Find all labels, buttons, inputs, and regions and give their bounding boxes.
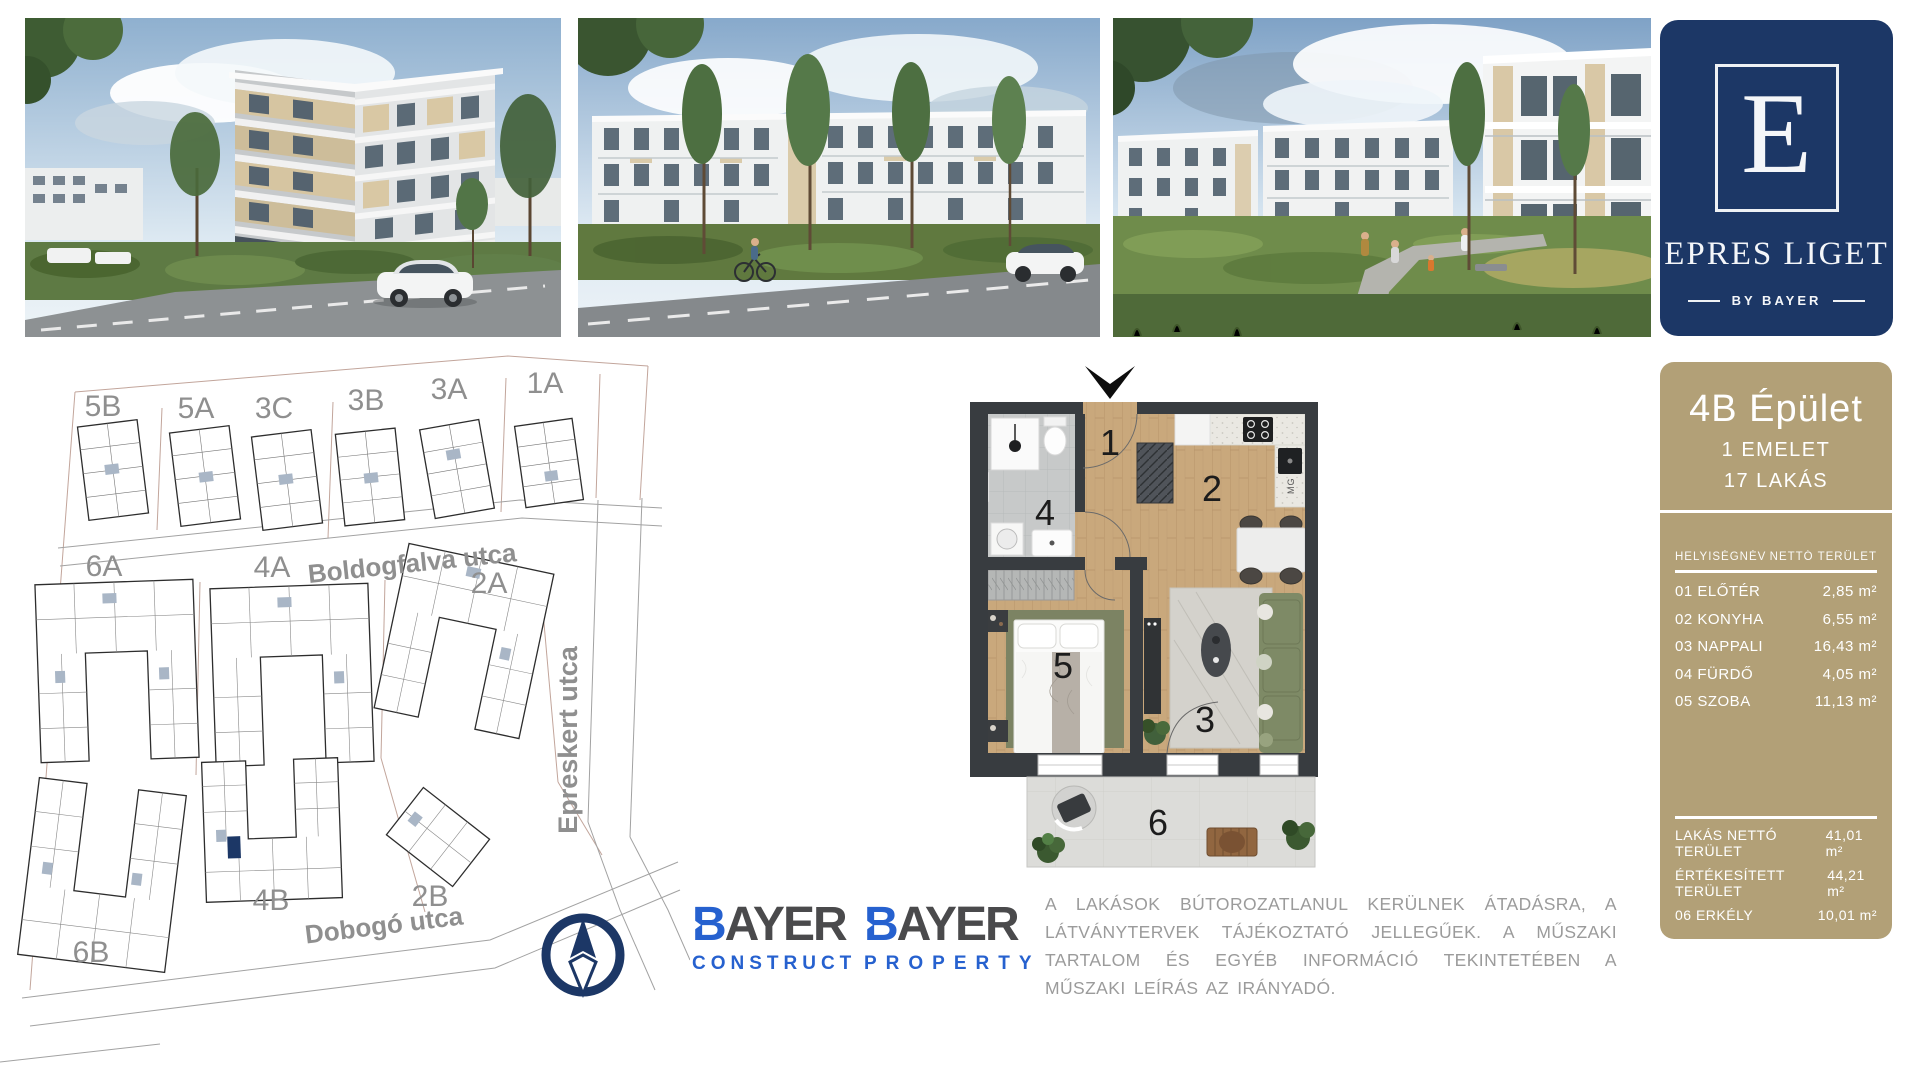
bayer-construct-wordmark: BAYER (692, 901, 856, 949)
map-label-6b: 6B (73, 936, 110, 969)
unit-info-panel: 4B Épület 1 EMELET 17 LAKÁS HELYISÉGNÉV … (1660, 362, 1892, 939)
room-number-5: 5 (1053, 645, 1073, 686)
bayer-construct-logo: BAYER CONSTRUCT (692, 901, 856, 973)
room-name: 03 NAPPALI (1675, 638, 1763, 655)
table-row-total: 06 ERKÉLY10,01 m² (1675, 907, 1877, 923)
total-area: 41,01 m² (1826, 827, 1877, 859)
room-table-header-rule (1675, 570, 1877, 573)
selected-unit-marker (227, 836, 241, 858)
table-row: 02 KONYHA6,55 m² (1675, 611, 1877, 628)
total-name: ÉRTÉKESÍTETT TERÜLET (1675, 867, 1827, 899)
room-table-header-name: HELYISÉGNÉV (1675, 551, 1766, 563)
coffee-table (1201, 623, 1231, 677)
bayer-b-initial: B (692, 901, 725, 949)
toilet-tank (1044, 417, 1066, 426)
unit-count: 17 LAKÁS (1660, 470, 1892, 493)
map-label-4b: 4B (253, 884, 290, 917)
appliance-label: MG (1286, 478, 1296, 495)
map-label-3a: 3A (431, 373, 468, 406)
map-label-3b: 3B (348, 384, 385, 417)
map-building-4b (202, 758, 343, 903)
total-area: 10,01 m² (1818, 907, 1877, 923)
room-name: 01 ELŐTÉR (1675, 583, 1760, 600)
bayer-rest: AYER (725, 898, 846, 951)
shaft-block (1137, 443, 1173, 503)
table-row: 05 SZOBA11,13 m² (1675, 693, 1877, 710)
entrance-arrow-icon (1085, 366, 1135, 399)
render-photo-2-art (578, 18, 1100, 337)
unit-title: 4B Épület (1660, 388, 1892, 431)
room-number-4: 4 (1035, 492, 1055, 533)
total-name: 06 ERKÉLY (1675, 907, 1753, 923)
tv-console (1144, 618, 1161, 714)
map-label-3c: 3C (255, 392, 293, 425)
table-row: 01 ELŐTÉR2,85 m² (1675, 583, 1877, 600)
bayer-property-division: PROPERTY (864, 954, 1041, 973)
map-label-1a: 1A (527, 367, 564, 400)
room-number-6: 6 (1148, 802, 1168, 843)
room-number-1: 1 (1100, 422, 1120, 463)
byline-rule-right (1833, 300, 1865, 302)
render-photo-corner-building (25, 18, 561, 337)
bayer-property-logo: BAYER PROPERTY (864, 901, 1041, 973)
render-photo-3-art (1113, 18, 1651, 337)
middle-building (1263, 120, 1453, 224)
unit-floor: 1 EMELET (1660, 439, 1892, 462)
room-area: 11,13 m² (1815, 693, 1877, 710)
brand-name: EPRES LIGET (1664, 236, 1889, 273)
disclaimer-text: A LAKÁSOK BÚTOROZATLANUL KERÜLNEK ÁTADÁS… (1045, 890, 1617, 1002)
room-area: 2,85 m² (1823, 583, 1877, 600)
byline-rule-left (1688, 300, 1720, 302)
room-area: 6,55 m² (1823, 611, 1877, 628)
room-area: 16,43 m² (1814, 638, 1877, 655)
nightstand (986, 610, 1008, 632)
street-label-epreskert: Epreskert utca (553, 645, 583, 834)
street-label-dobogo: Dobogó utca (303, 900, 465, 949)
dining-table (1237, 528, 1305, 572)
room-name: 05 SZOBA (1675, 693, 1751, 710)
brand-monogram: E (1741, 76, 1812, 192)
bayer-b-initial: B (864, 901, 897, 949)
room-table-header: HELYISÉGNÉV NETTÓ TERÜLET (1675, 551, 1877, 563)
bayer-construct-division: CONSTRUCT (692, 954, 856, 973)
toilet (1044, 427, 1066, 455)
balcony-bench (1207, 828, 1257, 856)
room-name: 02 KONYHA (1675, 611, 1764, 628)
room-number-3: 3 (1195, 699, 1215, 740)
bayer-rest: AYER (897, 898, 1018, 951)
render-photo-1-art (25, 18, 561, 337)
table-row: 03 NAPPALI16,43 m² (1675, 638, 1877, 655)
room-table: HELYISÉGNÉV NETTÓ TERÜLET 01 ELŐTÉR2,85 … (1660, 551, 1892, 923)
bayer-property-wordmark: BAYER (864, 901, 1041, 949)
brand-byline: BY BAYER (1732, 293, 1822, 308)
total-name: LAKÁS NETTÓ TERÜLET (1675, 827, 1826, 859)
brand-logo-panel: E EPRES LIGET BY BAYER (1660, 20, 1893, 336)
brochure-page: E EPRES LIGET BY BAYER (0, 0, 1920, 1080)
stove (1243, 417, 1273, 442)
map-label-6a: 6A (86, 550, 123, 583)
unit-info-header: 4B Épület 1 EMELET 17 LAKÁS (1660, 362, 1892, 510)
room-table-header-area: NETTÓ TERÜLET (1770, 551, 1877, 563)
render-photo-courtyard (1113, 18, 1651, 337)
brand-byline-row: BY BAYER (1688, 293, 1866, 308)
map-label-2a: 2A (471, 567, 508, 600)
table-row-total: LAKÁS NETTÓ TERÜLET41,01 m² (1675, 827, 1877, 859)
totals-rule (1675, 816, 1877, 819)
brand-monogram-frame: E (1715, 64, 1839, 212)
total-area: 44,21 m² (1827, 867, 1877, 899)
room-balcony (1027, 777, 1315, 867)
room-area: 4,05 m² (1823, 666, 1877, 683)
room-bathroom (984, 414, 1075, 557)
floor-plan: MG (960, 360, 1340, 905)
map-label-5b: 5B (85, 390, 122, 423)
compass-icon (535, 905, 635, 1005)
bench (1475, 264, 1507, 271)
room-number-2: 2 (1202, 468, 1222, 509)
panel-separator (1660, 510, 1892, 513)
table-row: 04 FÜRDŐ4,05 m² (1675, 666, 1877, 683)
map-label-5a: 5A (178, 392, 215, 425)
render-photo-street (578, 18, 1100, 337)
table-row-total: ÉRTÉKESÍTETT TERÜLET44,21 m² (1675, 867, 1877, 899)
map-label-4a: 4A (254, 551, 291, 584)
nightstand (986, 720, 1008, 742)
wardrobe (988, 570, 1074, 600)
room-name: 04 FÜRDŐ (1675, 666, 1753, 683)
